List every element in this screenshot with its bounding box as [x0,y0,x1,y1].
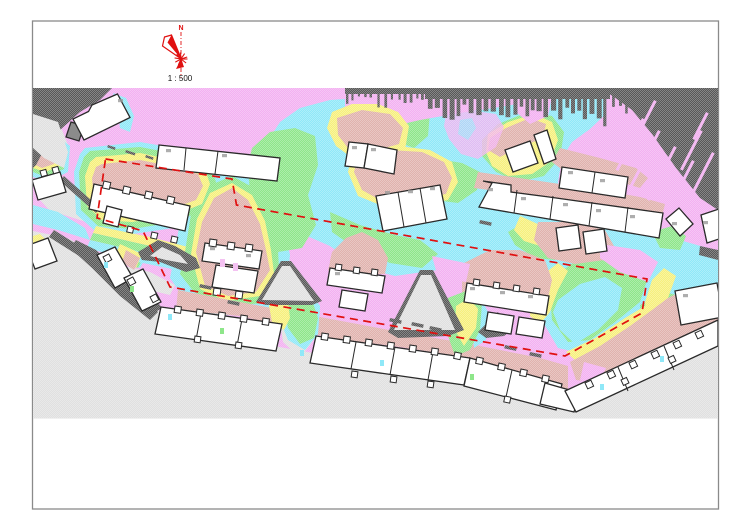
svg-text:N: N [178,25,183,32]
svg-text:1 : 500: 1 : 500 [168,74,193,83]
